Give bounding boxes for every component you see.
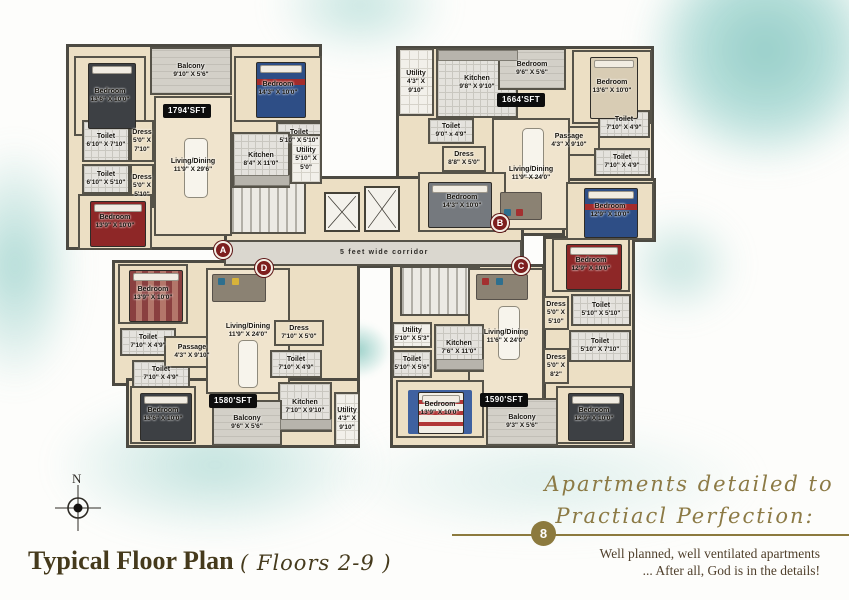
apt-c-dress-1: Dress5'0" X 5'10"	[543, 296, 569, 330]
lift-shaft-icon	[364, 186, 400, 232]
apt-c-bedroom-2: Bedroom13'9" X 10'0"	[396, 380, 484, 438]
apt-b-toilet-1: Toilet9'0" x 4'9"	[428, 118, 474, 144]
apt-c-toilet-2: Toilet5'10" X 7'10"	[569, 330, 631, 362]
tagline-line2: Practiacl Perfection:	[520, 504, 849, 528]
apt-b-area-badge: 1664'SFT	[497, 93, 545, 107]
tagline-line1: Apartments detailed to	[524, 472, 849, 496]
watercolor-wash	[640, 0, 849, 170]
apt-a-balcony: Balcony9'10" X 5'6"	[150, 47, 232, 95]
page-title-floors: ( Floors 2-9 )	[240, 551, 392, 575]
kitchen-counter-icon	[438, 50, 518, 61]
apt-d-utility: Utility4'3" X 9'10"	[334, 392, 360, 446]
apt-d-kitchen: Kitchen7'10" X 9'10"	[278, 382, 332, 432]
apt-d-dress: Dress7'10" X 5'0"	[274, 320, 324, 346]
apt-a-toilet-2: Toilet6'10" X 5'10"	[82, 164, 130, 194]
apt-b-bedroom-3: Bedroom12'9" X 10'0"	[566, 182, 654, 240]
kitchen-counter-icon	[436, 359, 484, 370]
apt-d-area-badge: 1580'SFT	[209, 394, 257, 408]
unit-marker-a: A	[214, 241, 232, 259]
apt-a-bedroom-3: Bedroom13'9" X 10'0"	[78, 194, 152, 250]
kitchen-counter-icon	[234, 175, 290, 186]
apt-d-bedroom-1: Bedroom13'9" X 10'0"	[118, 264, 188, 324]
apt-b-utility: Utility4'3" X 9'10"	[398, 48, 434, 116]
divider-line	[452, 534, 849, 536]
kitchen-counter-icon	[280, 419, 332, 430]
lift-shaft-icon	[324, 192, 360, 232]
apt-c-bedroom-3: Bedroom12'9" X 10'0"	[556, 386, 632, 444]
unit-marker-d: D	[255, 259, 273, 277]
apt-c-kitchen: Kitchen7'6" X 11'0"	[434, 324, 484, 372]
apt-a-bedroom-2: Bedroom14'3" X 10'0"	[234, 56, 322, 122]
number-badge: 8	[531, 521, 556, 546]
page-title: Typical Floor Plan	[28, 546, 234, 576]
dining-table-icon	[238, 340, 258, 388]
unit-marker-b: B	[491, 214, 509, 232]
apt-c-utility: Utility5'10" X 5'3"	[392, 322, 432, 348]
apt-b-dress: Dress8'8" X 5'0"	[442, 146, 486, 172]
apt-d-bedroom-2: Bedroom13'6" X 10'0"	[130, 386, 196, 444]
apt-a-area-badge: 1794'SFT	[163, 104, 211, 118]
apt-b-toilet-3: Toilet7'10" X 4'9"	[594, 148, 650, 176]
cushion-icon	[218, 278, 225, 285]
apt-d-toilet-3: Toilet7'10" X 4'9"	[270, 350, 322, 378]
cushion-icon	[496, 278, 503, 285]
apt-c-toilet-3: Toilet5'10" X 5'6"	[392, 350, 432, 378]
corridor-label: 5 feet wide corridor	[340, 249, 429, 256]
staircase-top	[230, 182, 306, 234]
apt-c-area-badge: 1590'SFT	[480, 393, 528, 407]
apt-c-dress-2: Dress5'0" X 8'2"	[543, 348, 569, 384]
cushion-icon	[232, 278, 239, 285]
apt-c-toilet-1: Toilet5'10" X 5'10"	[571, 294, 631, 326]
cushion-icon	[516, 209, 523, 216]
subtext-line1: Well planned, well ventilated apartments	[520, 546, 820, 562]
compass-icon	[55, 485, 101, 531]
unit-marker-c: C	[512, 257, 530, 275]
subtext-line2: ... After all, God is in the details!	[520, 563, 820, 579]
apt-c-bedroom-1: Bedroom12'9" X 10'0"	[552, 238, 630, 292]
cushion-icon	[482, 278, 489, 285]
